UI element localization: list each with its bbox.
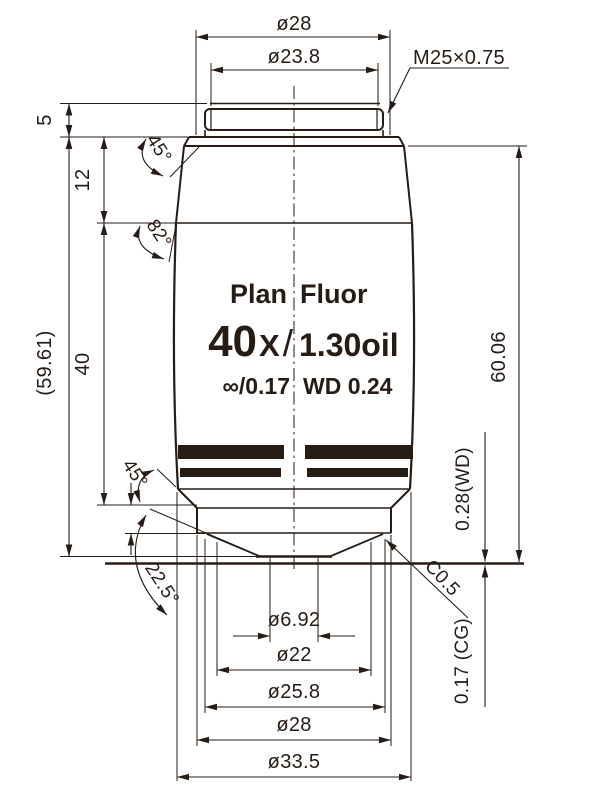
bottom-chamfer-right bbox=[391, 489, 410, 508]
nose-cone-right bbox=[331, 534, 383, 556]
dim-text-40: 40 bbox=[72, 353, 94, 376]
top-chamfer-stub bbox=[170, 147, 199, 177]
objective-dimension-drawing: Plan Fluor 40X/ 1.30oil ∞/0.17 WD 0.24 bbox=[0, 0, 612, 792]
dim-text-59-61: (59.61) bbox=[34, 330, 56, 395]
dim-text-d28-bottom: ø28 bbox=[276, 714, 311, 736]
bottom-chamfer-stub bbox=[157, 469, 176, 487]
dim-text-d28-top: ø28 bbox=[276, 13, 311, 35]
thread-leader-line bbox=[388, 68, 410, 113]
knurl-band-lower-left bbox=[180, 468, 281, 477]
dim-text-12: 12 bbox=[72, 169, 94, 192]
dim-text-wd: 0.28(WD) bbox=[453, 447, 474, 531]
dim-text-60-06: 60.06 bbox=[488, 331, 510, 383]
angle-text-45-top: 45° bbox=[142, 131, 176, 167]
dim-text-d33-5: ø33.5 bbox=[268, 751, 321, 773]
dim-text-5: 5 bbox=[34, 114, 56, 125]
knurl-band-lower-right bbox=[307, 468, 408, 477]
dim-text-d6-92: ø6.92 bbox=[268, 609, 321, 631]
drawing-canvas: Plan Fluor 40X/ 1.30oil ∞/0.17 WD 0.24 bbox=[0, 0, 612, 792]
angle-text-82: 82° bbox=[142, 216, 176, 252]
dim-text-d25-8: ø25.8 bbox=[268, 681, 321, 703]
knurl-band-upper-right bbox=[305, 445, 413, 459]
shoulder-side-right bbox=[404, 146, 412, 223]
knurl-band-upper-left bbox=[178, 445, 284, 459]
flange-chamfer-left bbox=[184, 137, 189, 146]
wd-engraving-text: WD 0.24 bbox=[303, 373, 393, 399]
objective-engraving: Plan Fluor 40X/ 1.30oil ∞/0.17 WD 0.24 bbox=[208, 279, 399, 399]
tube-length-text: ∞/0.17 bbox=[222, 373, 290, 399]
series-name-left: Plan bbox=[230, 279, 287, 309]
dim-text-cg: 0.17 (CG) bbox=[452, 618, 473, 704]
angle-text-45-bottom: 45° bbox=[118, 456, 152, 492]
flange-chamfer-right bbox=[399, 137, 404, 146]
barrel-side-left bbox=[174, 223, 178, 489]
series-name-right: Fluor bbox=[300, 279, 368, 309]
magnification-text: 40X/ bbox=[208, 317, 294, 366]
dim-text-d22: ø22 bbox=[276, 644, 311, 666]
aperture-text: 1.30oil bbox=[299, 327, 399, 363]
shoulder-side-left bbox=[176, 146, 184, 223]
dim-text-d23-8: ø23.8 bbox=[268, 46, 321, 68]
dim-text-thread-spec: M25×0.75 bbox=[413, 47, 505, 69]
